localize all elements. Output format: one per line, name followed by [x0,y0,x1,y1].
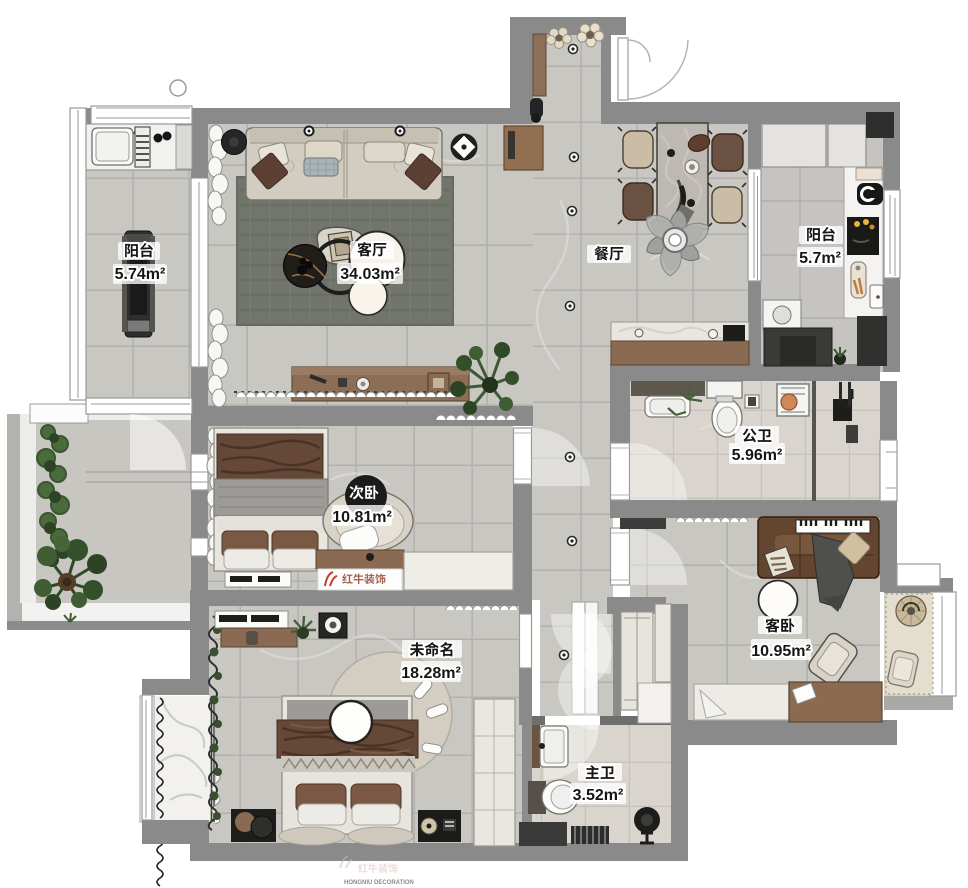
svg-text:18.28m²: 18.28m² [401,665,461,682]
svg-text:3.52m²: 3.52m² [573,787,624,804]
svg-text:5.96m²: 5.96m² [732,447,783,464]
svg-text:HONGNIU DECORATION: HONGNIU DECORATION [344,880,414,886]
svg-text:10.95m²: 10.95m² [751,643,811,660]
svg-text:34.03m²: 34.03m² [340,266,400,283]
svg-text:5.74m²: 5.74m² [115,266,166,283]
svg-text:5.7m²: 5.7m² [799,250,841,267]
svg-text:10.81m²: 10.81m² [332,509,392,526]
